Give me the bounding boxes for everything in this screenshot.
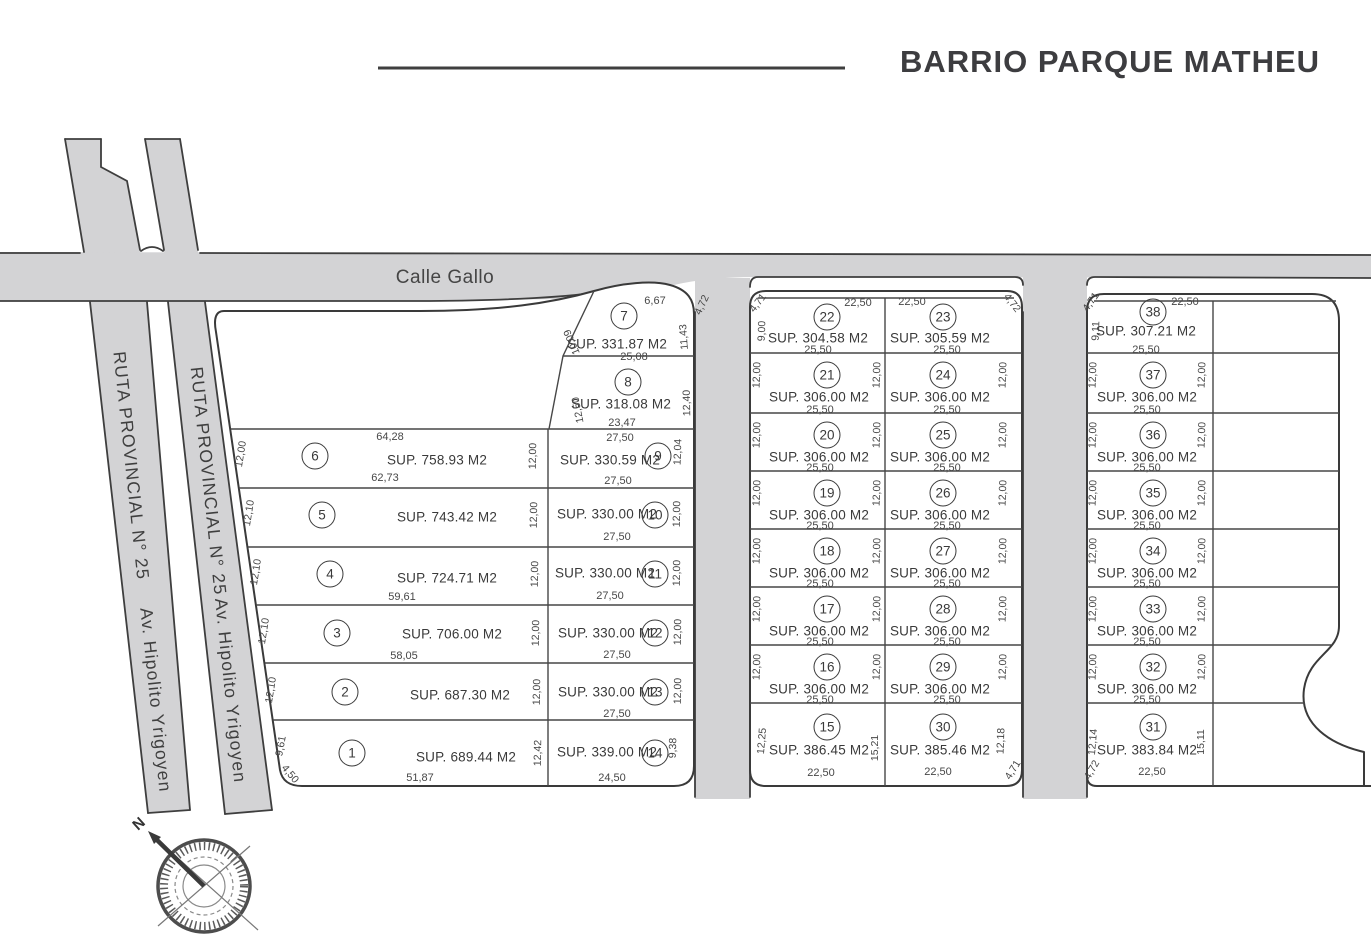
lot-2-surface: SUP. 687.30 M2 [410,688,510,703]
lot-36-dim-bottom: 25,50 [1133,462,1161,474]
lot-13-dim-right: 12,00 [672,678,684,704]
lot-10-surface: SUP. 330.00 M2 [557,507,657,522]
lot-25-number: 25 [930,422,957,449]
lot-22-dim-left: 9,00 [756,321,769,342]
lot-8-dim-right: 12,40 [681,390,693,416]
lot-7-dim-top: 6,67 [644,295,665,307]
lot-33-dim-right: 12,00 [1196,596,1209,623]
lot-30-dim-right: 12,18 [995,728,1008,755]
page-title: BARRIO PARQUE MATHEU [900,44,1320,80]
lot-27-dim-right: 12,00 [997,538,1010,565]
lot-18-dim-bottom: 25,50 [806,578,834,590]
lot-16-dim-right: 12,00 [871,654,884,681]
lot-29-number: 29 [930,654,957,681]
lot-34-dim-left: 12,00 [1087,538,1100,565]
lot-37-dim-left: 12,00 [1087,362,1100,389]
lot-24-dim-bottom: 25,50 [933,404,961,416]
lot-20-dim-bottom: 25,50 [806,462,834,474]
lot-21-dim-bottom: 25,50 [806,404,834,416]
lot-8-dim-bottom: 23,47 [608,417,636,429]
lot-37-surface: SUP. 306.00 M2 [1097,390,1197,405]
lot-31-dim-left: 12,14 [1086,728,1100,755]
lot-25-dim-bottom: 25,50 [933,462,961,474]
lot-17-dim-left: 12,00 [751,596,764,623]
lot-11-surface: SUP. 330.00 M2 [555,566,655,581]
lot-37-number: 37 [1140,362,1167,389]
lot-10-dim-right: 12,00 [671,501,683,527]
lot-17-dim-bottom: 25,50 [806,636,834,648]
lot-28-number: 28 [930,596,957,623]
street-2 [1023,277,1087,799]
lot-16-dim-left: 12,00 [751,654,764,681]
lot-14-surface: SUP. 339.00 M2 [557,745,657,760]
lot-3-dim-bottom: 58,05 [390,650,418,662]
lot-21-number: 21 [814,362,841,389]
lot-13-dim-bottom: 27,50 [603,708,631,720]
lot-24-number: 24 [930,362,957,389]
lot-5-surface: SUP. 743.42 M2 [397,510,497,525]
lot-8-number: 8 [615,369,642,396]
lot-23-dim-top: 22,50 [898,296,926,308]
lot-17-number: 17 [814,596,841,623]
lot-35-dim-right: 12,00 [1196,480,1209,507]
lot-32-dim-right: 12,00 [1196,654,1209,681]
lot-10-dim-bottom: 27,50 [603,531,631,543]
lot-31-number: 31 [1140,714,1167,741]
lot-2-number: 2 [332,679,359,706]
lot-11-dim-right: 12,00 [671,560,683,586]
lot-9-dim-right: 12,04 [672,439,685,466]
lot-30-dim-bottom: 22,50 [924,766,952,778]
lot-24-surface: SUP. 306.00 M2 [890,390,990,405]
lot-1-surface: SUP. 689.44 M2 [416,750,516,765]
lot-29-dim-right: 12,00 [997,654,1010,681]
blocks [215,283,1371,786]
lot-16-number: 16 [814,654,841,681]
lot-15-surface: SUP. 386.45 M2 [769,743,869,758]
lot-1-number: 1 [339,740,366,767]
lot-20-dim-left: 12,00 [751,422,764,449]
lot-17-dim-right: 12,00 [871,596,884,623]
lot-12-dim-bottom: 27,50 [603,649,631,661]
lot-29-dim-bottom: 25,50 [933,694,961,706]
lot-5-number: 5 [309,502,336,529]
lot-27-number: 27 [930,538,957,565]
lot-21-dim-left: 12,00 [751,362,764,389]
block-3-outline [1087,294,1364,786]
lot-23-dim-bottom: 25,50 [933,344,961,356]
lot-6-dim-top: 64,28 [376,431,404,443]
lot-22-dim-bottom: 25,50 [804,344,832,356]
lot-9-surface: SUP. 330.59 M2 [560,453,660,468]
lot-32-dim-bottom: 25,50 [1133,694,1161,706]
lot-7-dim-right: 11,43 [677,324,691,350]
lot-28-dim-bottom: 25,50 [933,636,961,648]
lot-21-surface: SUP. 306.00 M2 [769,390,869,405]
lot-26-dim-right: 12,00 [997,480,1010,507]
lot-33-dim-bottom: 25,50 [1133,636,1161,648]
lot-14-dim-bottom: 24,50 [598,772,626,784]
lot-34-dim-right: 12,00 [1196,538,1209,565]
lot-36-number: 36 [1140,422,1167,449]
lot-8-surface: SUP. 318.08 M2 [571,397,671,412]
lot-37-dim-bottom: 25,50 [1133,404,1161,416]
lot-9-dim-bottom: 27,50 [604,475,632,487]
lot-28-dim-right: 12,00 [997,596,1010,623]
lot-3-number: 3 [324,620,351,647]
lot-9-dim-top: 27,50 [606,432,634,444]
lot-33-dim-left: 12,00 [1087,596,1100,623]
lot-7-dim-bottom: 25,08 [620,351,648,363]
lot-34-number: 34 [1140,538,1167,565]
lot-25-dim-right: 12,00 [997,422,1010,449]
lot-32-number: 32 [1140,654,1167,681]
lot-4-surface: SUP. 724.71 M2 [397,571,497,586]
lot-27-dim-bottom: 25,50 [933,578,961,590]
lot-19-dim-bottom: 25,50 [806,520,834,532]
lot-3-surface: SUP. 706.00 M2 [402,627,502,642]
lot-24-dim-right: 12,00 [997,362,1010,389]
lot-26-number: 26 [930,480,957,507]
lot-6-dim-bottom: 62,73 [371,472,399,484]
lot-12-surface: SUP. 330.00 M2 [558,626,658,641]
lot-11-dim-bottom: 27,50 [596,590,624,602]
lot-35-dim-bottom: 25,50 [1133,520,1161,532]
lot-38-dim-left: 9,11 [1090,321,1103,341]
lot-19-dim-left: 12,00 [751,480,764,507]
lot-15-dim-right: 15,21 [869,735,881,761]
lot-37-dim-right: 12,00 [1196,362,1209,389]
lot-18-dim-left: 12,00 [751,538,764,565]
lot-32-dim-left: 12,00 [1087,654,1100,681]
lot-16-dim-bottom: 25,50 [806,694,834,706]
lot-21-dim-right: 12,00 [871,362,884,389]
lot-20-dim-right: 12,00 [871,422,884,449]
lot-22-dim-top: 22,50 [844,297,872,309]
lot-36-dim-right: 12,00 [1196,422,1209,449]
lot-4-number: 4 [317,561,344,588]
road-label-calle-gallo: Calle Gallo [396,267,494,289]
lot-38-surface: SUP. 307.21 M2 [1096,324,1196,339]
lot-9-dim-left: 12,00 [527,443,539,469]
block-2-outline [750,291,1022,786]
street-1 [695,278,750,799]
lot-30-surface: SUP. 385.46 M2 [890,743,990,758]
lot-35-dim-left: 12,00 [1087,480,1100,507]
lot-7-number: 7 [611,303,638,330]
lot-13-surface: SUP. 330.00 M2 [558,685,658,700]
lot-33-number: 33 [1140,596,1167,623]
lot-14-dim-right: 9,38 [667,738,680,759]
lot-6-number: 6 [302,443,329,470]
lot-38-dim-top: 22,50 [1171,296,1199,308]
lot-10-dim-left: 12,00 [528,502,540,528]
lot-12-dim-right: 12,00 [672,619,684,645]
lot-36-dim-left: 12,00 [1087,422,1100,449]
lot-35-number: 35 [1140,480,1167,507]
lot-26-dim-bottom: 25,50 [933,520,961,532]
lot-12-dim-left: 12,00 [530,620,542,646]
lot-11-dim-left: 12,00 [529,561,541,587]
lot-6-surface: SUP. 758.93 M2 [387,453,487,468]
lot-14-dim-left: 12,42 [532,740,544,766]
lot-19-dim-right: 12,00 [871,480,884,507]
lot-19-number: 19 [814,480,841,507]
subdivision-plan: BARRIO PARQUE MATHEU Calle Gallo RUTA PR… [0,0,1371,950]
lot-18-number: 18 [814,538,841,565]
lot-15-dim-bottom: 22,50 [807,767,835,779]
lot-23-number: 23 [930,304,957,331]
lot-18-dim-right: 12,00 [871,538,884,565]
lot-13-dim-left: 12,00 [531,679,543,705]
compass-rose [148,831,258,932]
lot-38-dim-bottom: 25,50 [1132,344,1160,356]
lot-34-dim-bottom: 25,50 [1133,578,1161,590]
lot-1-dim-bottom: 51,87 [406,772,434,784]
lot-4-dim-bottom: 59,61 [388,591,416,603]
lot-31-dim-bottom: 22,50 [1138,766,1166,778]
lot-31-dim-right: 15,11 [1195,729,1207,755]
lot-31-surface: SUP. 383.84 M2 [1097,743,1197,758]
lot-22-number: 22 [814,304,841,331]
lot-15-number: 15 [814,714,841,741]
lot-15-dim-left: 12,25 [755,727,769,754]
lot-30-number: 30 [930,714,957,741]
lot-38-number: 38 [1140,299,1167,326]
lot-20-number: 20 [814,422,841,449]
